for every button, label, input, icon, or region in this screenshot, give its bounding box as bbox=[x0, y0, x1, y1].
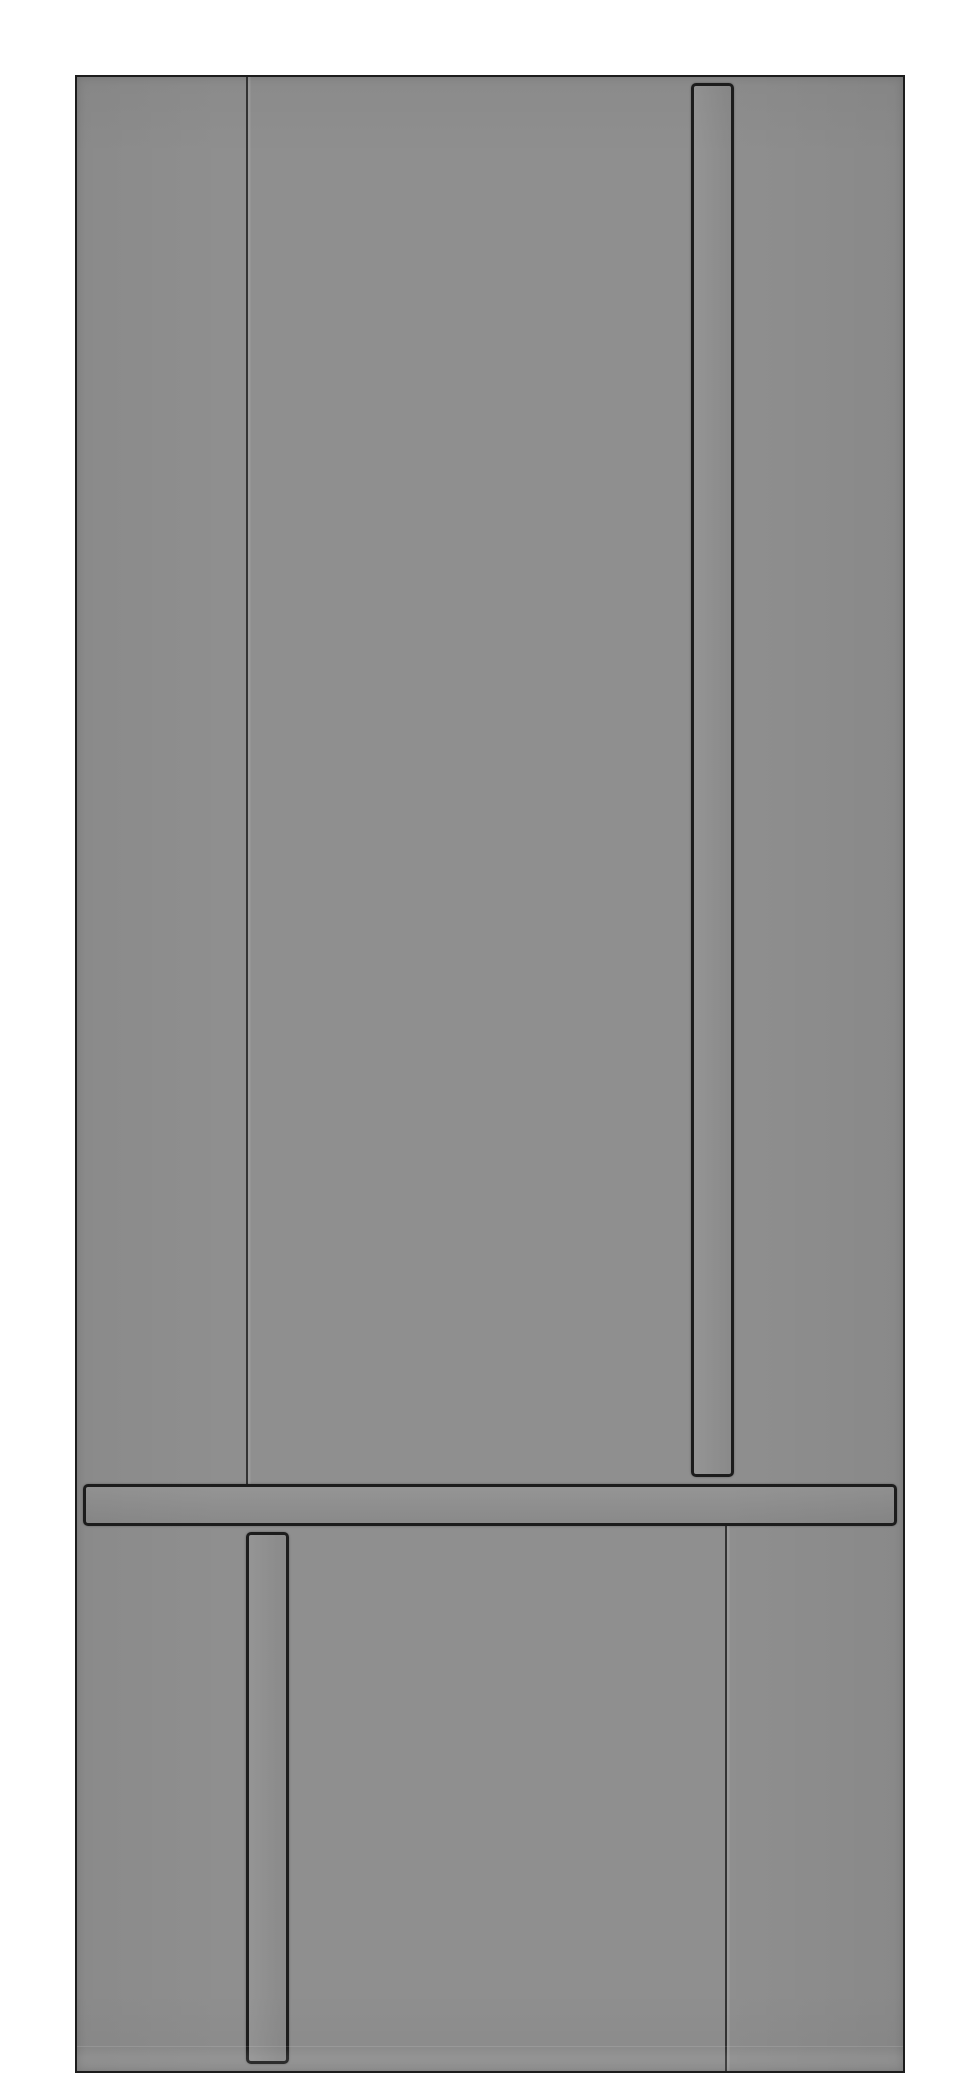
lower-drawer-handle-groove bbox=[246, 1532, 289, 2064]
lower-drawer-seam bbox=[725, 1526, 730, 2071]
product-render-background bbox=[0, 0, 980, 2100]
refrigerator-front-panel bbox=[75, 75, 905, 2073]
upper-door-handle-groove bbox=[691, 83, 734, 1477]
bottom-reflection-band bbox=[77, 2046, 903, 2071]
upper-door-seam bbox=[246, 77, 251, 1484]
drawer-rail-groove bbox=[83, 1484, 897, 1526]
